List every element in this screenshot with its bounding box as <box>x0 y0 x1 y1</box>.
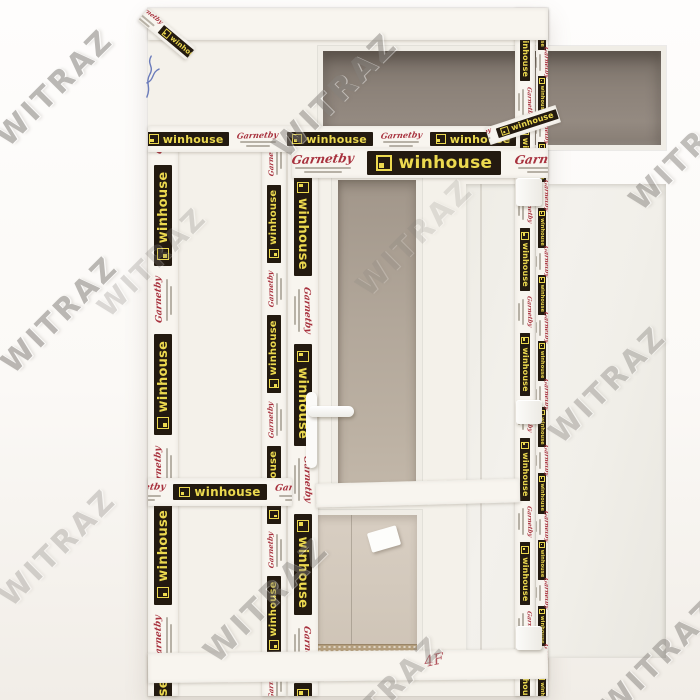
door-hinge-bottom <box>516 626 542 650</box>
door-handle-plate <box>306 392 317 468</box>
product-photo: GarnetbywinhouseGarnetbywinhouseGarnetby… <box>0 0 700 700</box>
hardware-layer <box>0 0 700 700</box>
door-hinge-top <box>516 178 542 206</box>
door-hinge-middle <box>516 400 542 424</box>
door-handle-lever <box>308 406 354 417</box>
